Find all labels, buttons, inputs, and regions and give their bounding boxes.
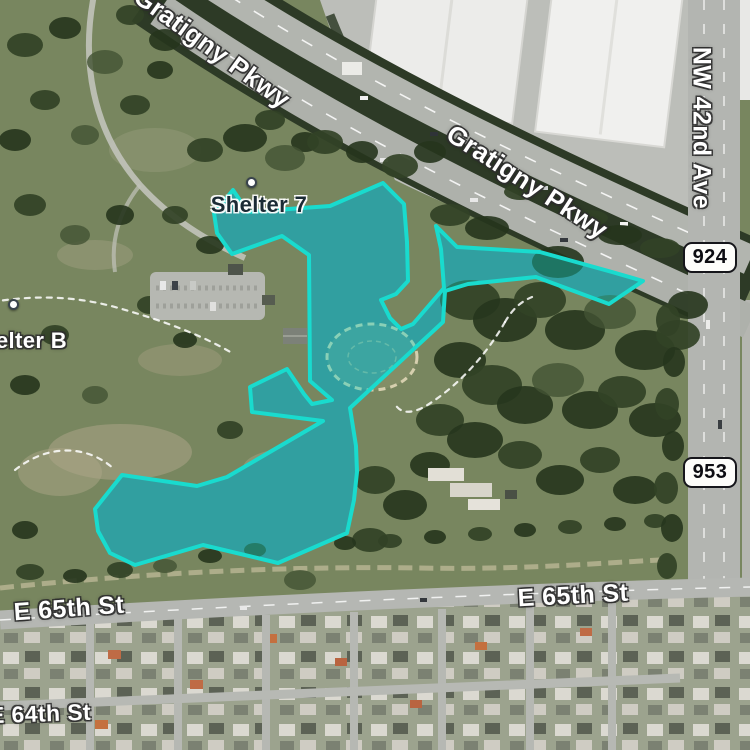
road-label-e-65th-st-right: E 65th St [517, 579, 629, 614]
route-badge-924: 924 [683, 242, 737, 273]
poi-label-shelter-b[interactable]: Shelter B [0, 328, 67, 354]
route-badge-953: 953 [683, 457, 737, 488]
poi-label-shelter-7[interactable]: Shelter 7 [211, 192, 308, 218]
shelter-b-marker-dot[interactable] [8, 299, 19, 310]
map-viewport[interactable]: Gratigny Pkwy Gratigny Pkwy NW 42nd Ave … [0, 0, 750, 750]
parking-lot [150, 272, 265, 320]
road-label-e-64th-st: E 64th St [0, 699, 91, 730]
map-canvas[interactable] [0, 0, 750, 750]
road-label-nw-42nd-ave: NW 42nd Ave [687, 47, 716, 209]
route-badge-924-text: 924 [693, 246, 728, 269]
shelter-7-marker-dot[interactable] [246, 177, 257, 188]
route-badge-953-text: 953 [693, 461, 728, 484]
